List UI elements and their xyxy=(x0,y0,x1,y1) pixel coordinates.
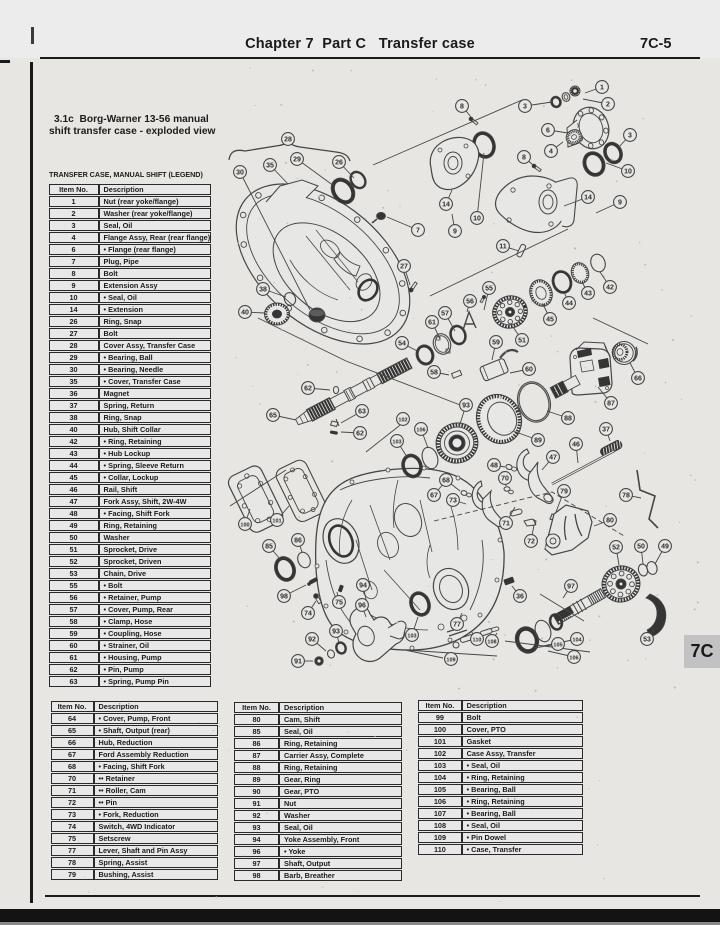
svg-text:27: 27 xyxy=(400,263,408,270)
svg-text:9: 9 xyxy=(618,199,622,206)
svg-text:28: 28 xyxy=(284,136,292,143)
svg-text:62: 62 xyxy=(304,385,312,392)
svg-text:93: 93 xyxy=(462,402,470,409)
svg-text:42: 42 xyxy=(606,284,614,291)
svg-text:101: 101 xyxy=(272,518,281,524)
svg-text:55: 55 xyxy=(485,285,493,292)
svg-text:44: 44 xyxy=(565,300,573,307)
svg-text:70: 70 xyxy=(501,475,509,482)
svg-text:47: 47 xyxy=(549,454,557,461)
svg-text:100: 100 xyxy=(240,522,249,528)
svg-text:103: 103 xyxy=(392,439,401,445)
svg-text:106: 106 xyxy=(569,655,578,661)
svg-text:74: 74 xyxy=(304,610,312,617)
svg-text:6: 6 xyxy=(546,127,550,134)
svg-text:92: 92 xyxy=(308,636,316,643)
svg-text:57: 57 xyxy=(441,310,449,317)
svg-text:2: 2 xyxy=(606,101,610,108)
svg-text:26: 26 xyxy=(335,159,343,166)
svg-text:62: 62 xyxy=(356,430,364,437)
svg-text:104: 104 xyxy=(572,637,582,643)
svg-text:88: 88 xyxy=(564,415,572,422)
svg-text:73: 73 xyxy=(449,497,457,504)
svg-text:3: 3 xyxy=(523,103,527,110)
svg-text:68: 68 xyxy=(442,477,450,484)
svg-text:43: 43 xyxy=(584,290,592,297)
svg-text:8: 8 xyxy=(460,103,464,110)
svg-text:96: 96 xyxy=(358,602,366,609)
svg-text:71: 71 xyxy=(502,520,510,527)
svg-text:36: 36 xyxy=(516,593,524,600)
svg-text:11: 11 xyxy=(499,243,507,250)
svg-text:14: 14 xyxy=(442,201,450,208)
svg-text:77: 77 xyxy=(453,621,461,628)
svg-text:60: 60 xyxy=(525,366,533,373)
svg-text:80: 80 xyxy=(606,517,614,524)
svg-text:10: 10 xyxy=(473,215,481,222)
svg-text:53: 53 xyxy=(643,636,651,643)
svg-text:63: 63 xyxy=(358,408,366,415)
svg-text:61: 61 xyxy=(428,319,436,326)
svg-text:102: 102 xyxy=(398,417,407,423)
svg-text:51: 51 xyxy=(518,337,526,344)
svg-text:59: 59 xyxy=(492,339,500,346)
svg-text:105: 105 xyxy=(553,642,562,648)
svg-text:54: 54 xyxy=(398,340,406,347)
svg-text:29: 29 xyxy=(293,156,301,163)
svg-text:93: 93 xyxy=(332,628,340,635)
svg-text:89: 89 xyxy=(534,437,542,444)
svg-text:103: 103 xyxy=(407,633,416,639)
svg-text:72: 72 xyxy=(527,538,535,545)
svg-text:37: 37 xyxy=(602,426,610,433)
svg-text:8: 8 xyxy=(522,154,526,161)
svg-text:14: 14 xyxy=(584,194,592,201)
svg-text:78: 78 xyxy=(622,492,630,499)
svg-text:65: 65 xyxy=(269,412,277,419)
svg-text:94: 94 xyxy=(359,582,367,589)
svg-text:30: 30 xyxy=(236,169,244,176)
svg-text:3: 3 xyxy=(628,132,632,139)
svg-text:85: 85 xyxy=(265,543,273,550)
svg-text:49: 49 xyxy=(661,543,669,550)
svg-text:97: 97 xyxy=(567,583,575,590)
svg-text:109: 109 xyxy=(446,657,455,663)
svg-text:48: 48 xyxy=(490,462,498,469)
svg-text:38: 38 xyxy=(259,286,267,293)
svg-text:98: 98 xyxy=(280,593,288,600)
svg-text:7: 7 xyxy=(416,227,420,234)
svg-text:91: 91 xyxy=(294,658,302,665)
svg-text:108: 108 xyxy=(487,639,496,645)
svg-text:75: 75 xyxy=(335,599,343,606)
svg-text:35: 35 xyxy=(266,162,274,169)
svg-text:79: 79 xyxy=(560,488,568,495)
svg-text:50: 50 xyxy=(637,543,645,550)
svg-text:1: 1 xyxy=(600,84,604,91)
svg-text:9: 9 xyxy=(453,228,457,235)
svg-text:4: 4 xyxy=(549,148,553,155)
svg-text:46: 46 xyxy=(572,441,580,448)
svg-text:67: 67 xyxy=(430,492,438,499)
svg-text:52: 52 xyxy=(612,544,620,551)
svg-text:87: 87 xyxy=(607,400,615,407)
svg-text:58: 58 xyxy=(430,369,438,376)
svg-text:56: 56 xyxy=(466,298,474,305)
svg-text:86: 86 xyxy=(294,537,302,544)
svg-text:10: 10 xyxy=(624,168,632,175)
svg-text:40: 40 xyxy=(241,309,249,316)
svg-text:106: 106 xyxy=(416,427,425,433)
svg-text:66: 66 xyxy=(634,375,642,382)
svg-text:110: 110 xyxy=(473,637,482,643)
svg-text:45: 45 xyxy=(546,316,554,323)
